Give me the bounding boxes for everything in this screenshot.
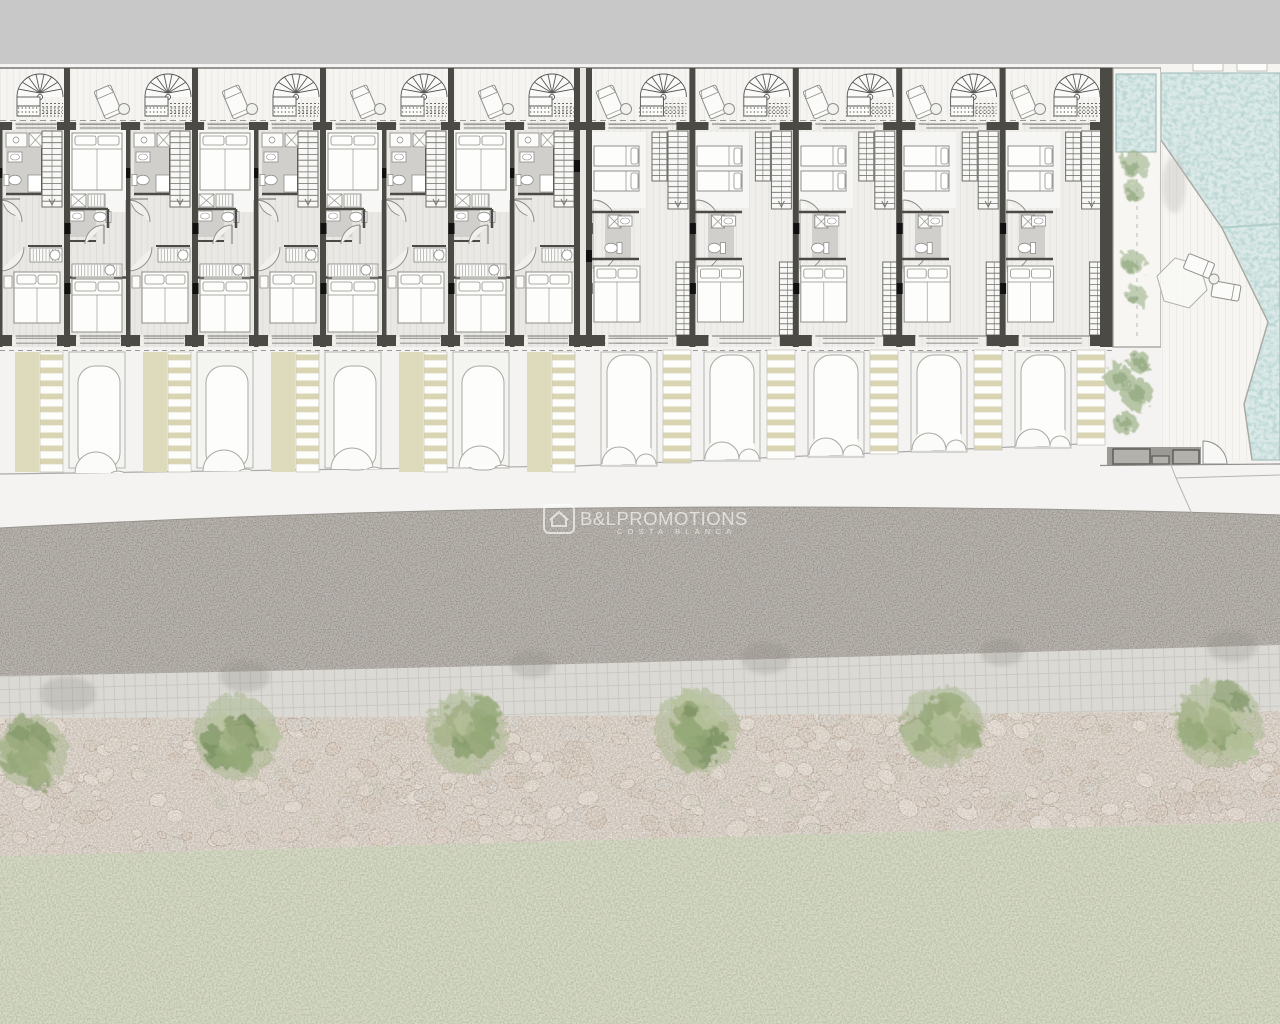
svg-text:B&LPROMOTIONS: B&LPROMOTIONS (580, 508, 748, 529)
svg-text:COSTA BLANCA: COSTA BLANCA (617, 527, 736, 536)
